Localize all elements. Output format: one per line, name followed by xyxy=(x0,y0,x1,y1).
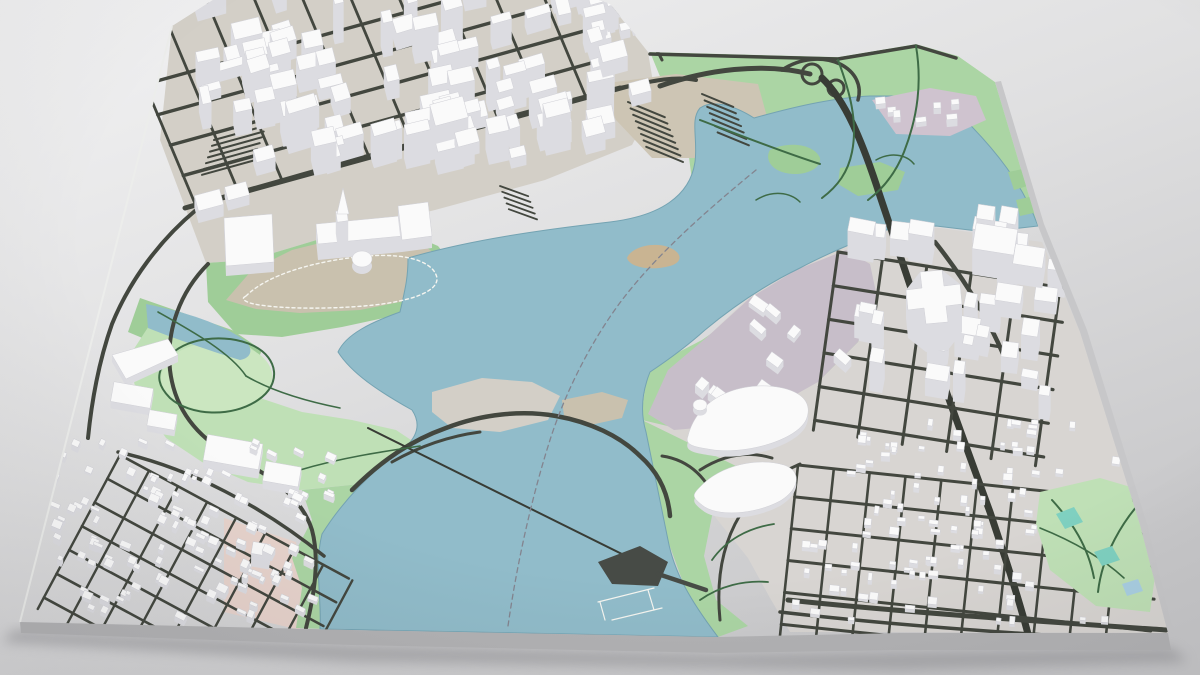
building xyxy=(906,270,962,352)
building xyxy=(224,214,274,276)
building xyxy=(336,210,348,244)
building xyxy=(972,223,1018,281)
building xyxy=(454,127,479,159)
building xyxy=(693,399,707,415)
map-surface xyxy=(38,0,1168,675)
building xyxy=(598,39,628,77)
building xyxy=(1013,244,1046,288)
building xyxy=(629,78,652,107)
building xyxy=(352,251,372,274)
city-map-3d-render xyxy=(0,0,1200,675)
building xyxy=(398,202,432,252)
building xyxy=(995,282,1023,320)
render-stage xyxy=(0,0,1200,675)
